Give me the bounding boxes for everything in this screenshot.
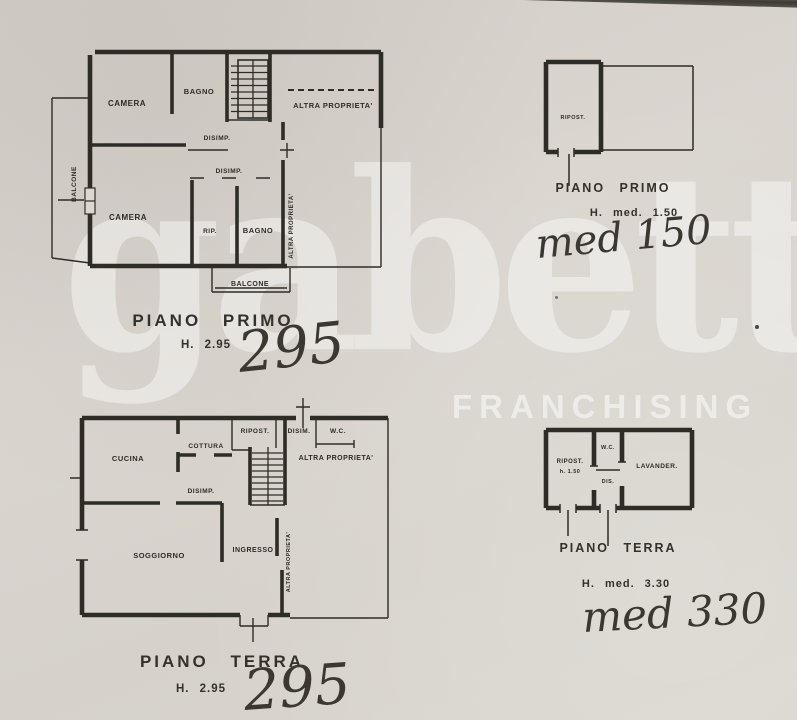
room-label-altra-proprieta-side-terra: ALTRA PROPRIETA': [286, 532, 292, 593]
scan-speck: [555, 296, 558, 299]
room-label-ripost-annex2-height: h. 1.50: [560, 469, 581, 475]
caption-piano-primo-main-height: H. 2.95: [181, 339, 231, 351]
room-label-camera-top: CAMERA: [108, 99, 146, 108]
room-label-disimp-1: DISIMP.: [204, 135, 231, 142]
handwritten-height-piano-primo-annex: med 150: [534, 207, 714, 268]
caption-piano-primo-annex-title: PIANO PRIMO: [555, 181, 670, 195]
room-label-disim: DISIM.: [288, 428, 311, 435]
plan-piano-primo-main: CAMERA BAGNO ALTRA PROPRIETA' DISIMP. DI…: [52, 52, 381, 386]
plan-c-outer-walls: [82, 418, 388, 615]
room-label-lavanderia: LAVANDER.: [636, 463, 677, 470]
room-label-soggiorno: SOGGIORNO: [133, 551, 185, 560]
room-label-wc-annex: W.C.: [601, 445, 615, 451]
handwritten-height-piano-primo-main: 295: [234, 310, 348, 386]
plan-piano-primo-annex: RIPOST. PIANO PRIMO H. med. 1.50 med 150: [534, 62, 714, 268]
room-label-rip: RIP.: [203, 228, 217, 235]
scanned-floor-plan-page: gabetti FRANCHISING CAMERA BAGNO ALTRA P…: [0, 0, 797, 720]
room-label-ingresso: INGRESSO: [233, 547, 274, 554]
room-label-disimp-terra: DISIMP.: [188, 488, 215, 495]
plan-a-stair-treads: [231, 60, 268, 118]
plan-c-interior-walls: [82, 418, 285, 615]
room-label-bagno-bottom: BAGNO: [243, 226, 273, 235]
caption-piano-terra-annex-title: PIANO TERRA: [559, 541, 676, 555]
room-label-disimp-2: DISIMP.: [216, 168, 243, 175]
room-label-altra-proprieta-side: ALTRA PROPRIETA': [289, 193, 295, 258]
room-label-cottura: COTTURA: [188, 443, 223, 450]
scan-speck: [755, 325, 759, 329]
room-label-camera-bottom: CAMERA: [109, 213, 147, 222]
room-label-wc-terra: W.C.: [330, 428, 346, 435]
room-label-altra-proprieta-top-terra: ALTRA PROPRIETA': [299, 455, 374, 462]
plan-a-staircase: [231, 60, 268, 118]
room-label-dis-annex: DIS.: [602, 479, 615, 485]
room-label-cucina: CUCINA: [112, 454, 144, 463]
floor-plan-drawing: CAMERA BAGNO ALTRA PROPRIETA' DISIMP. DI…: [0, 0, 797, 720]
plan-b-thin-lines: [558, 66, 693, 186]
room-label-ripost-terra: RIPOST.: [241, 428, 270, 435]
plan-piano-terra-main: CUCINA COTTURA RIPOST. DISIM. W.C. ALTRA…: [70, 398, 388, 720]
plan-b-thick-walls: [546, 62, 601, 152]
plan-a-thin-lines: [52, 98, 381, 292]
room-label-altra-proprieta-top: ALTRA PROPRIETA': [293, 101, 373, 110]
handwritten-height-piano-terra-annex: med 330: [581, 583, 768, 642]
caption-piano-terra-main-height: H. 2.95: [176, 683, 226, 695]
plan-piano-terra-annex: RIPOST. h. 1.50 W.C. DIS. LAVANDER. PIAN…: [546, 430, 768, 642]
room-label-balcone-left: BALCONE: [71, 166, 78, 202]
plan-c-staircase: [252, 447, 283, 505]
room-label-bagno-top: BAGNO: [184, 87, 214, 96]
room-label-ripost-annex1: RIPOST.: [561, 115, 586, 121]
room-label-ripost-annex2: RIPOST.: [557, 459, 584, 465]
handwritten-height-piano-terra-main: 295: [240, 652, 352, 720]
room-label-balcone-bottom: BALCONE: [231, 281, 269, 288]
plan-c-stair-treads: [252, 447, 283, 505]
